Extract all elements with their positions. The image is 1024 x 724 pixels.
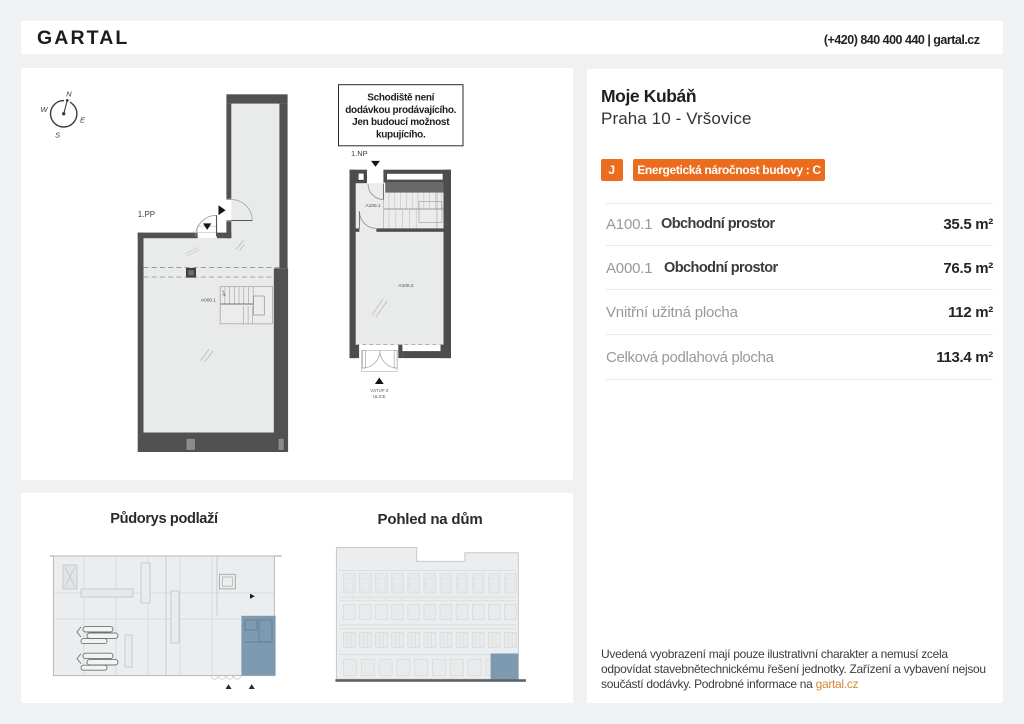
svg-text:VSTUP Z: VSTUP Z (370, 388, 388, 393)
svg-text:A100.2: A100.2 (398, 283, 414, 289)
svg-text:A100.1: A100.1 (365, 203, 381, 209)
svg-text:A000.1: A000.1 (201, 298, 217, 304)
svg-text:ULICE: ULICE (373, 394, 386, 399)
svg-text:E: E (80, 116, 86, 125)
svg-text:Jen budoucí možnost: Jen budoucí možnost (352, 117, 450, 128)
svg-text:1.NP: 1.NP (351, 149, 368, 158)
svg-text:kupujícího.: kupujícího. (376, 129, 426, 140)
svg-text:1.PP: 1.PP (138, 210, 155, 219)
svg-text:W: W (41, 105, 49, 114)
svg-text:N: N (66, 89, 72, 98)
svg-text:dodávkou prodávajícího.: dodávkou prodávajícího. (345, 105, 456, 116)
svg-text:S: S (55, 131, 60, 140)
svg-text:Schodiště není: Schodiště není (367, 93, 435, 104)
